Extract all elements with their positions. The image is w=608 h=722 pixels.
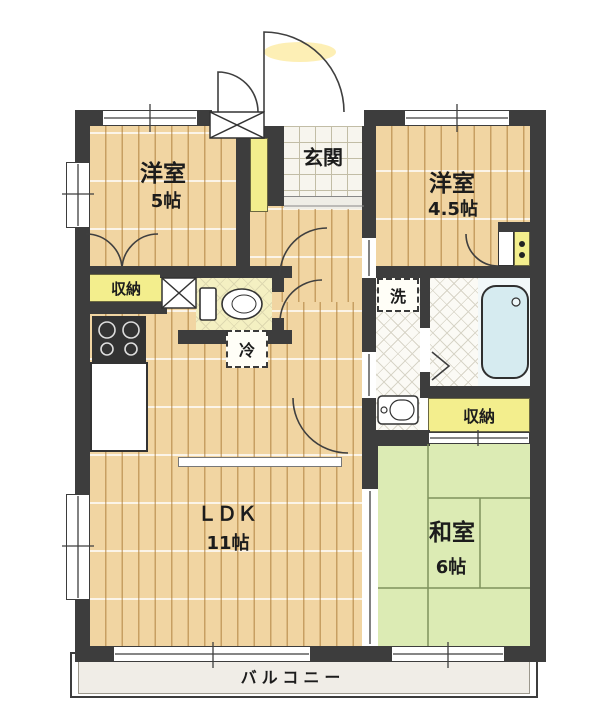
room-label-yoshitsu45: 洋室 [429, 164, 475, 198]
bathroom-doorway [420, 328, 430, 372]
wall [420, 386, 546, 398]
wall [498, 222, 530, 232]
room-label-genkan: 玄関 [303, 142, 343, 171]
entrance-storage-door-arc [218, 72, 258, 112]
toilet-floor [196, 278, 272, 330]
slider-yoshitsu45 [362, 238, 376, 278]
room-size-washitsu: 6帖 [436, 553, 467, 579]
wall [272, 278, 284, 292]
room-size-yoshitsu45: 4.5帖 [428, 195, 478, 221]
stove [92, 316, 146, 362]
storage-left-label: 収納 [111, 278, 141, 299]
window-top-left [102, 110, 198, 126]
wall [362, 430, 430, 446]
refrigerator-label: 冷 [239, 337, 255, 361]
wall [364, 110, 404, 126]
bathtub-zone [478, 278, 530, 386]
window-left-lower [66, 494, 90, 600]
balcony-slider-ldk [113, 646, 311, 662]
storage-right-label: 収納 [463, 403, 495, 427]
wall [75, 110, 90, 164]
window-left-upper [66, 162, 90, 228]
refrigerator-space: 冷 [226, 330, 268, 368]
wall [160, 266, 292, 278]
washer-space: 洗 [377, 278, 419, 312]
utility-nook [514, 230, 530, 266]
window-top-right [404, 110, 510, 126]
wall [80, 266, 166, 274]
wall [311, 646, 391, 662]
wall [75, 302, 167, 314]
floor-plan: 収納 収納 冷 洗 [0, 0, 608, 722]
genkan-step [284, 196, 364, 209]
utility-box [498, 230, 514, 266]
kitchen-counter [90, 362, 148, 452]
room-label-washitsu: 和室 [429, 513, 475, 547]
balcony-label: バルコニー [241, 664, 346, 688]
wall [178, 330, 228, 344]
washroom-doorway [362, 352, 376, 398]
highlight-mark [264, 42, 336, 62]
bathroom-floor [430, 278, 478, 386]
wall [362, 126, 376, 446]
storage-right: 収納 [428, 398, 530, 432]
balcony-slider-washitsu [391, 646, 505, 662]
room-size-yoshitsu5: 5帖 [151, 187, 182, 213]
room-size-ldk: 11帖 [206, 529, 249, 555]
wall [75, 646, 115, 662]
wall [250, 126, 268, 138]
entrance-door-arc [264, 32, 344, 112]
storage-left: 収納 [88, 274, 164, 302]
washer-label: 洗 [390, 283, 406, 307]
wall [198, 110, 212, 126]
floor-threshold [178, 457, 342, 467]
wall [236, 126, 250, 276]
fusuma-washitsu [362, 489, 378, 646]
room-label-ldk: ＬＤＫ [197, 498, 257, 527]
wall [268, 126, 284, 206]
entry-cabinet [250, 138, 268, 212]
wall [362, 266, 546, 278]
wall [272, 318, 284, 344]
wall [362, 446, 378, 491]
room-label-yoshitsu5: 洋室 [140, 154, 186, 188]
wall [505, 646, 546, 662]
storage-right-slider [428, 432, 530, 444]
